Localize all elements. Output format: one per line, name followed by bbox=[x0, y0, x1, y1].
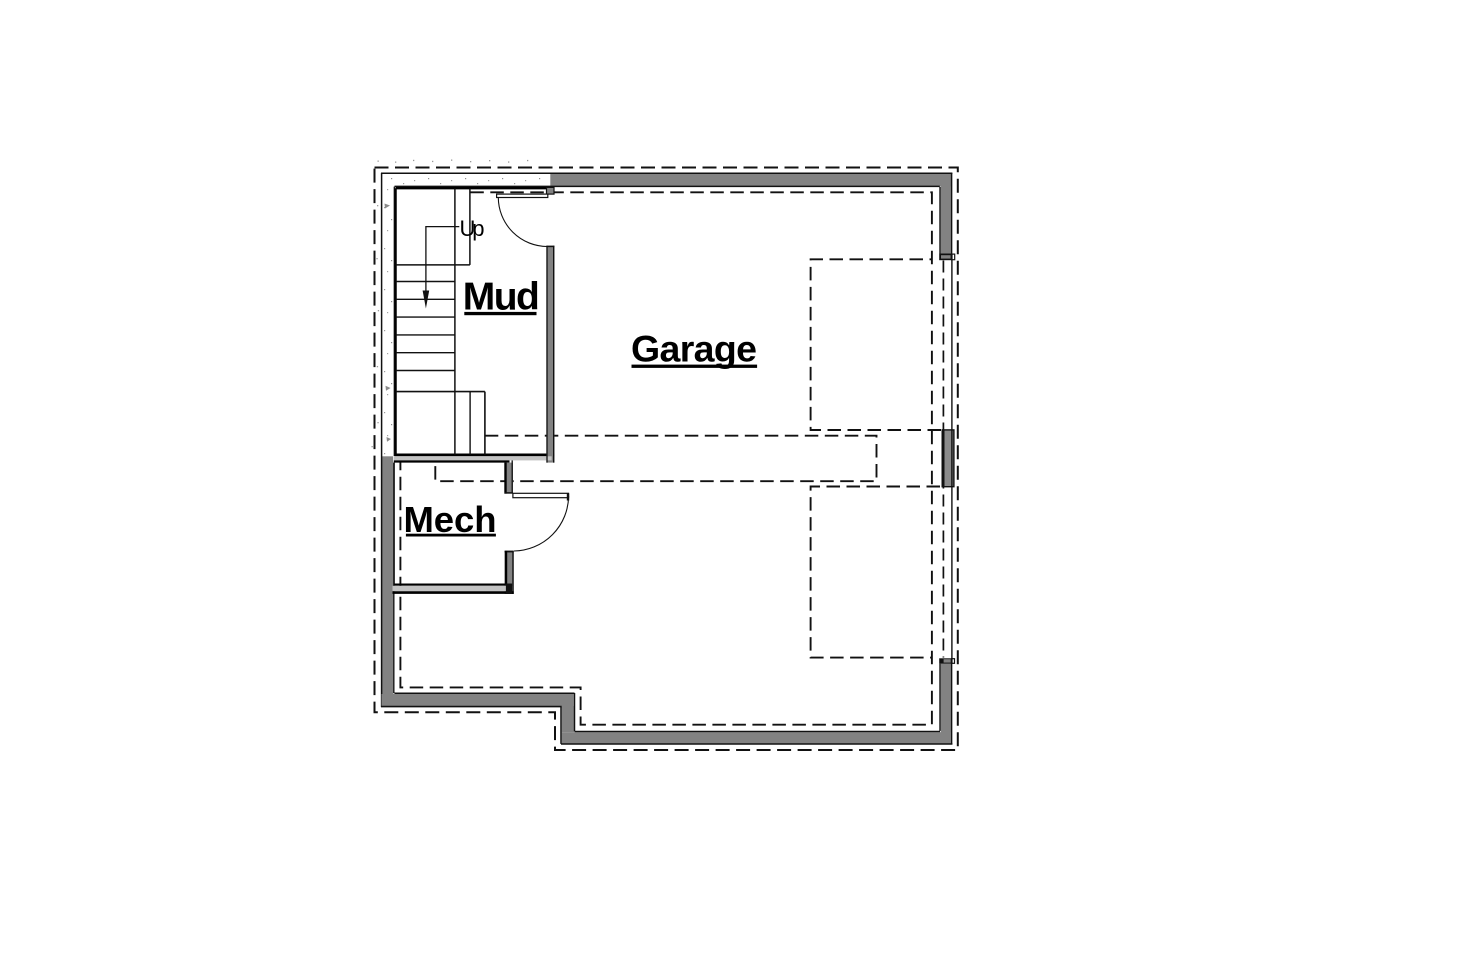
svg-text:Up: Up bbox=[460, 216, 485, 241]
svg-text:Garage: Garage bbox=[631, 327, 757, 369]
